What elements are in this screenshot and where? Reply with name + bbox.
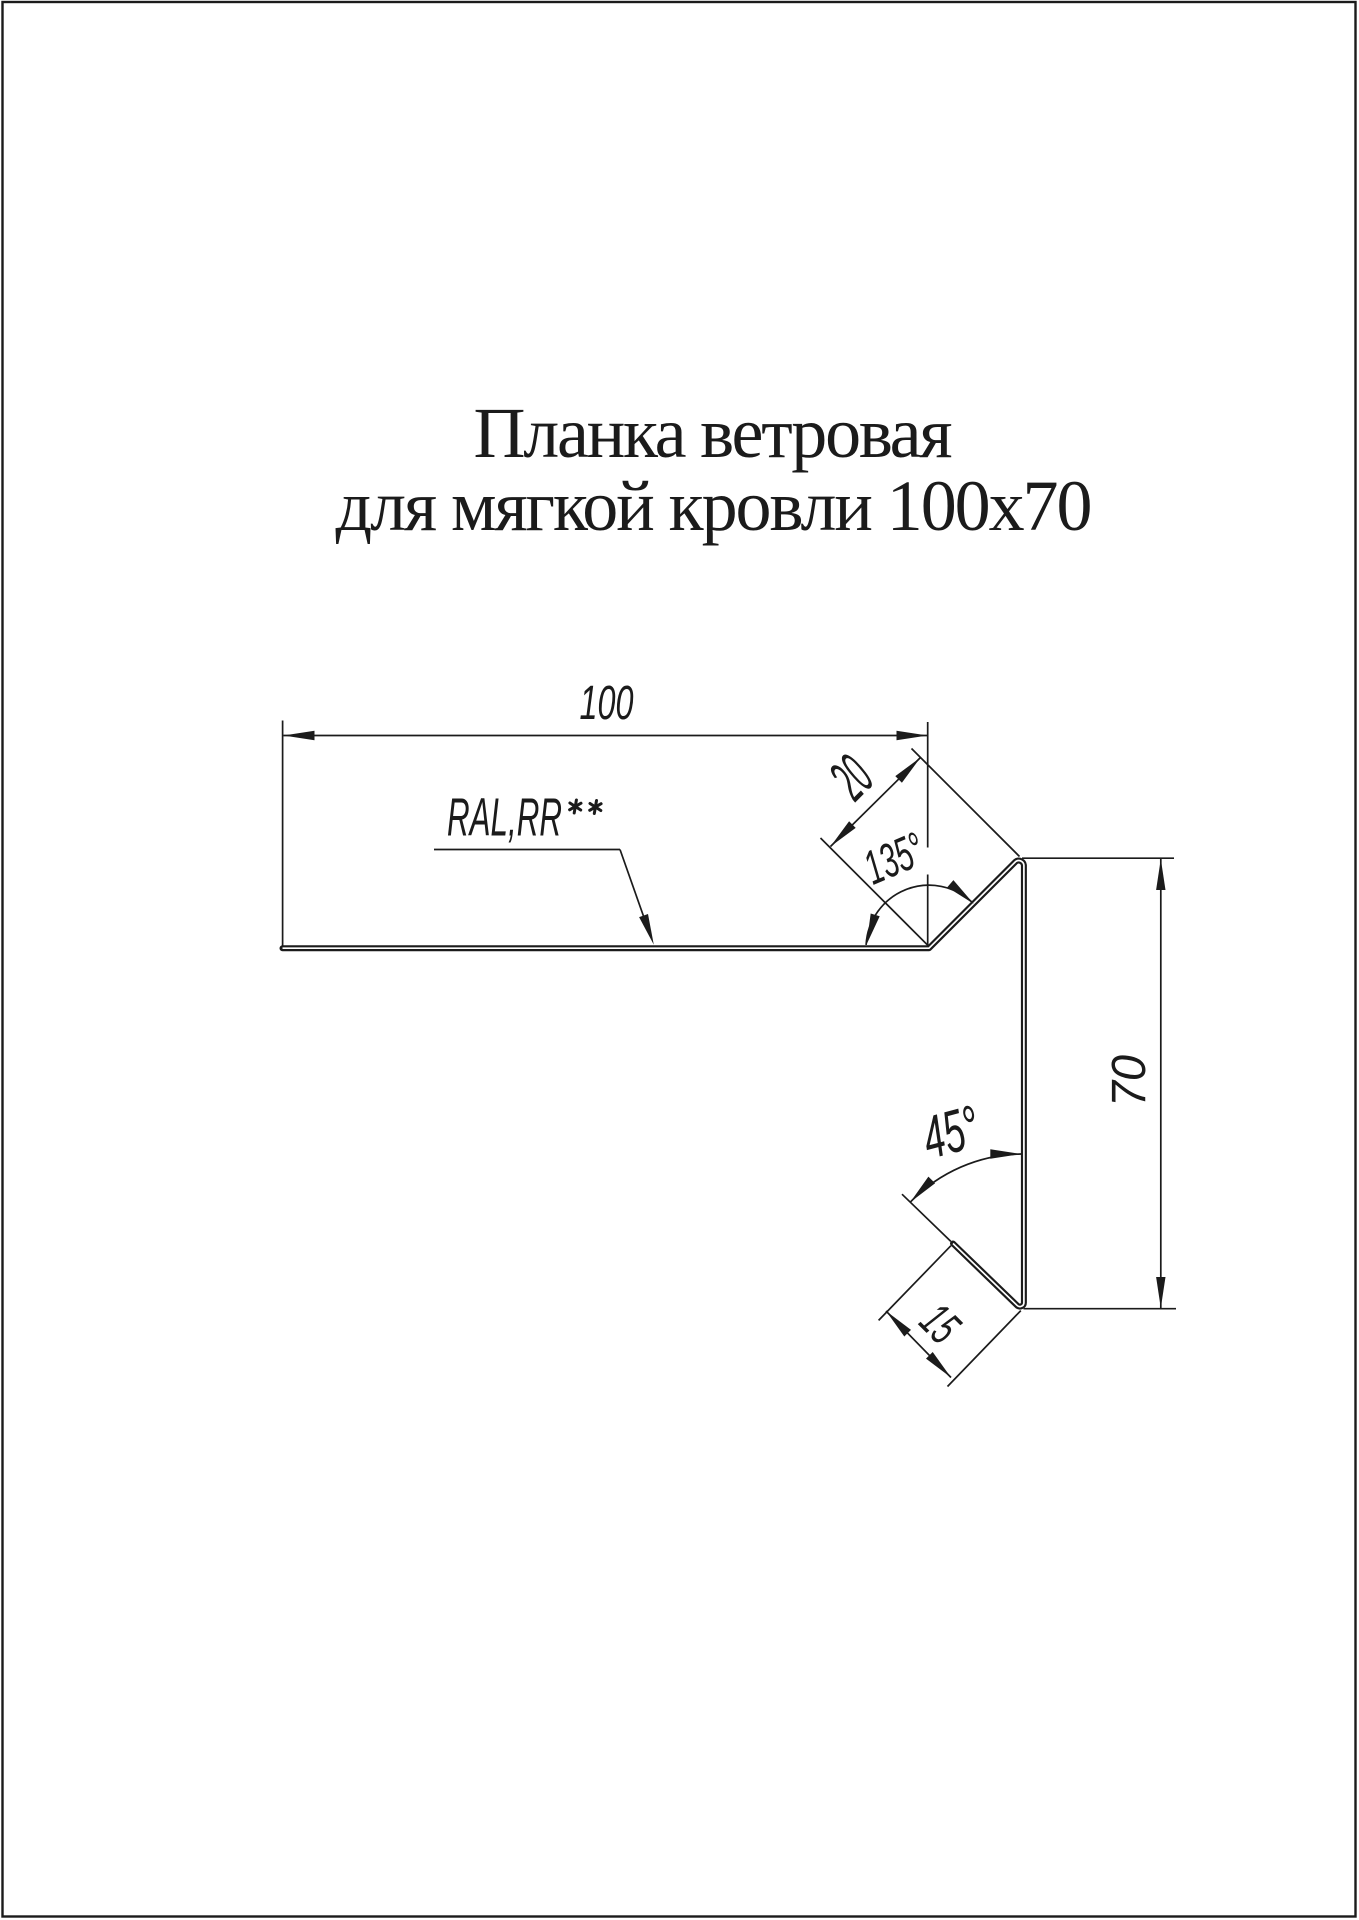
svg-text:100: 100 bbox=[580, 677, 634, 730]
svg-text:RAL,RR: RAL,RR bbox=[447, 788, 562, 848]
svg-text:70: 70 bbox=[1103, 1055, 1156, 1107]
svg-text:для мягкой кровли 100х70: для мягкой кровли 100х70 bbox=[336, 466, 1093, 546]
svg-text:Планка ветровая: Планка ветровая bbox=[474, 393, 953, 473]
